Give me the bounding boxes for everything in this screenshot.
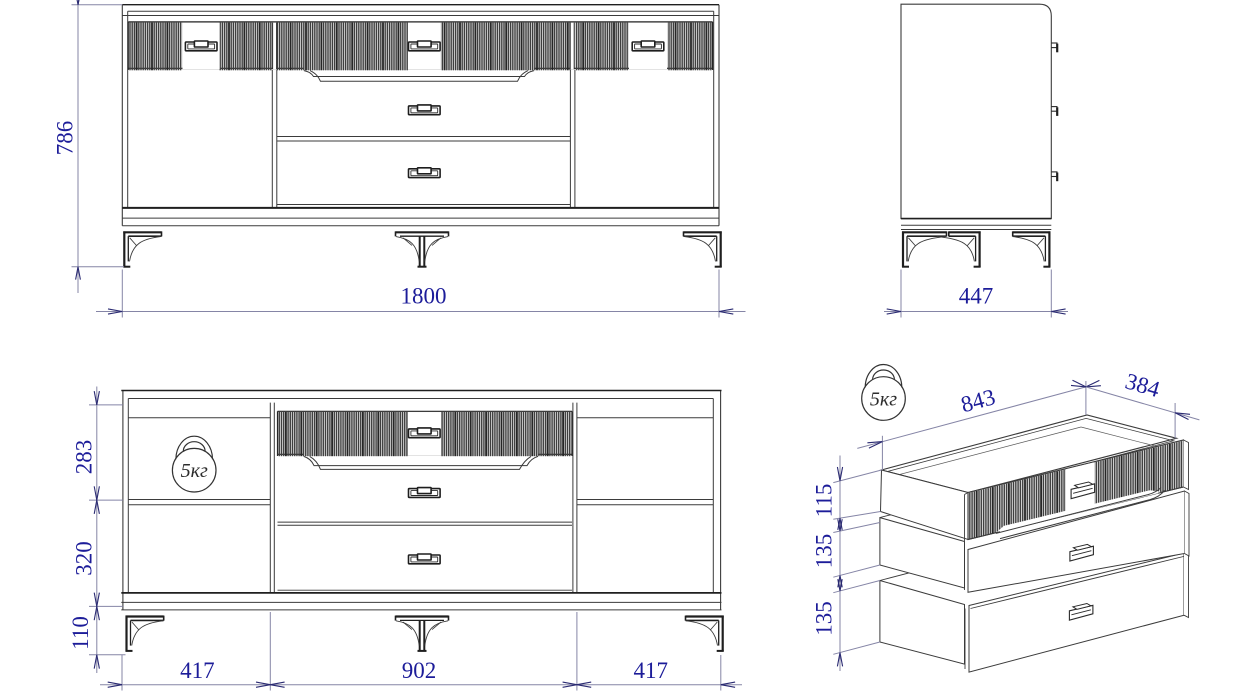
svg-text:115: 115 [812, 484, 837, 518]
svg-text:902: 902 [402, 658, 437, 683]
svg-text:135: 135 [812, 534, 837, 569]
svg-text:1800: 1800 [401, 284, 447, 309]
svg-text:5кг: 5кг [870, 389, 897, 411]
svg-text:417: 417 [180, 658, 215, 683]
svg-text:5кг: 5кг [181, 460, 208, 482]
svg-text:135: 135 [812, 601, 837, 636]
svg-text:786: 786 [53, 121, 78, 156]
svg-text:320: 320 [71, 541, 96, 576]
svg-text:417: 417 [634, 658, 669, 683]
svg-text:283: 283 [71, 440, 96, 475]
svg-text:447: 447 [959, 284, 994, 309]
svg-text:110: 110 [68, 616, 93, 650]
